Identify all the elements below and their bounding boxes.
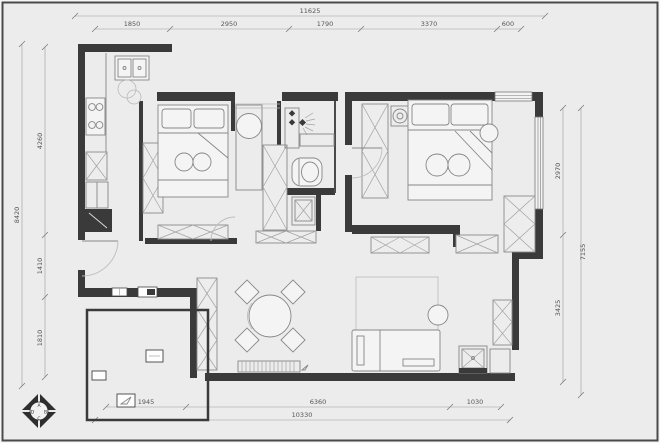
dim-left-3: 1810 xyxy=(36,330,44,347)
right-cabinet-icon xyxy=(504,196,535,252)
kitchen-sink-icon xyxy=(115,56,149,80)
power-outlet-icon xyxy=(138,287,157,297)
power-outlet-icon xyxy=(117,394,135,407)
master-bench-icon xyxy=(371,237,429,253)
compass-letter-c: C xyxy=(37,416,40,422)
dim-right-total: 7155 xyxy=(579,244,587,261)
dim-top-2: 2950 xyxy=(221,20,238,28)
dim-top-1: 1850 xyxy=(124,20,141,28)
dim-top-3: 1790 xyxy=(317,20,334,28)
tv-wall-cabinet-icon xyxy=(456,235,498,253)
dim-top-4: 3370 xyxy=(421,20,438,28)
compass-letter-b: B xyxy=(44,410,47,416)
double-bed-icon xyxy=(408,100,492,200)
compass-letter-d: D xyxy=(31,410,35,416)
dim-right-2: 3425 xyxy=(554,300,562,317)
floor-plan-screenshot: 11625 1850 2950 1790 3370 600 8420 4260 … xyxy=(0,0,660,443)
power-outlet-icon xyxy=(112,288,127,296)
dim-bottom-1: 1945 xyxy=(138,398,155,406)
power-outlet-icon xyxy=(92,371,106,380)
bed-end-bench-icon xyxy=(158,225,228,239)
window-master-top xyxy=(495,92,532,101)
dim-top-total: 11625 xyxy=(300,7,321,15)
single-bed-icon xyxy=(158,105,228,197)
dim-right-1: 2970 xyxy=(554,163,562,180)
lower-right-wardrobe-icon xyxy=(493,300,512,345)
round-stool-icon xyxy=(480,124,498,142)
dining-table-icon xyxy=(249,295,291,337)
side-table-icon xyxy=(428,305,448,325)
dim-bottom-total: 10330 xyxy=(292,411,313,419)
dim-left-1: 4260 xyxy=(36,133,44,150)
floor-plan-canvas: 11625 1850 2950 1790 3370 600 8420 4260 … xyxy=(0,0,660,443)
corridor-cabinet-icon xyxy=(256,231,316,243)
washbasin-icon xyxy=(237,114,262,139)
dim-left-total: 8420 xyxy=(13,207,21,224)
sofa-icon xyxy=(352,330,440,371)
toilet-icon xyxy=(292,158,322,186)
window-master-right xyxy=(535,117,543,209)
hall-cabinet-icon xyxy=(263,145,287,230)
cooktop-icon xyxy=(86,98,105,135)
master-wardrobe-icon xyxy=(362,104,388,198)
dim-left-2: 1410 xyxy=(36,258,44,275)
power-outlet-icon xyxy=(146,350,163,362)
dim-bottom-2: 6360 xyxy=(310,398,327,406)
dim-bottom-3: 1030 xyxy=(467,398,484,406)
dim-top-5: 600 xyxy=(502,20,514,28)
refrigerator-icon xyxy=(85,209,112,232)
